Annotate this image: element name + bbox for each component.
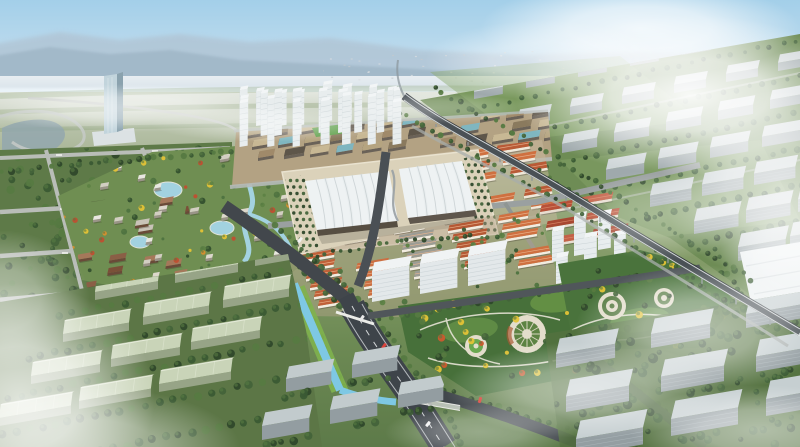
tree-highlight (670, 263, 673, 266)
tree-highlight (200, 152, 203, 155)
tree-highlight (37, 165, 40, 168)
plaza-tree (480, 202, 483, 205)
tree-highlight (507, 258, 510, 261)
aerial-rendering (0, 0, 800, 447)
tree-highlight (485, 306, 488, 309)
tree-highlight (176, 291, 179, 294)
tree-highlight (189, 356, 193, 360)
plaza-tree (305, 211, 308, 214)
tree-highlight (479, 341, 481, 343)
tree (516, 271, 519, 274)
tree (322, 252, 326, 256)
plaza-tree (292, 198, 295, 201)
tree-highlight (67, 178, 70, 181)
tree-highlight (660, 260, 662, 262)
tree-highlight (104, 158, 107, 161)
distant-building (415, 56, 417, 57)
tree (480, 236, 483, 239)
tree-highlight (571, 167, 574, 170)
tree-highlight (420, 319, 423, 322)
tree-highlight (408, 364, 410, 366)
plaza-tree (302, 218, 305, 221)
tree-highlight (442, 363, 445, 366)
plaza-tree (483, 209, 486, 212)
plaza-tree (302, 192, 305, 195)
tree-highlight (516, 219, 519, 222)
tree-highlight (209, 390, 213, 394)
small-plaza-center (474, 344, 479, 349)
tree-highlight (265, 273, 269, 277)
tree-highlight (290, 392, 293, 395)
distant-building (358, 79, 360, 80)
tree (541, 232, 544, 235)
plaza-tree (467, 163, 470, 166)
distant-building (331, 77, 333, 78)
cloud (425, 20, 665, 100)
tree-highlight (436, 354, 440, 358)
tree-highlight (407, 409, 411, 413)
tree-highlight (318, 265, 322, 269)
distant-building (367, 72, 369, 73)
tree-highlight (431, 236, 433, 238)
tree-highlight (199, 161, 201, 163)
tree-highlight (181, 153, 184, 156)
tree-highlight (212, 283, 216, 287)
tree-highlight (201, 247, 204, 250)
tree-highlight (354, 422, 357, 425)
tree-highlight (556, 155, 559, 158)
plaza-tree (477, 170, 480, 173)
tree (97, 161, 101, 165)
tree-highlight (206, 246, 209, 249)
tree-highlight (529, 142, 531, 144)
tree (89, 161, 93, 165)
tree (357, 248, 360, 251)
distant-building (421, 59, 423, 60)
tree (310, 253, 314, 257)
tree-highlight (435, 366, 439, 370)
tree-highlight (338, 269, 341, 272)
distant-building (422, 66, 424, 67)
cloud (330, 92, 530, 124)
plaza-tree (295, 179, 298, 182)
tree-highlight (510, 254, 512, 256)
tree-highlight (260, 379, 264, 383)
tree (207, 264, 210, 267)
tree-highlight (401, 356, 404, 359)
tree-highlight (274, 192, 277, 195)
tree-highlight (151, 155, 154, 158)
tree-highlight (73, 218, 76, 221)
plaza-tree (305, 224, 308, 227)
tree-highlight (190, 154, 192, 156)
tree-highlight (200, 286, 203, 289)
plaza-tree (470, 170, 473, 173)
tree (562, 163, 566, 167)
tree-highlight (392, 338, 395, 341)
tree-highlight (255, 416, 259, 420)
tree-highlight (137, 156, 140, 159)
tree-highlight (227, 279, 230, 282)
tree-highlight (328, 272, 330, 274)
tree-highlight (201, 251, 203, 253)
tree-highlight (143, 333, 146, 336)
distant-building (348, 66, 350, 67)
tree-highlight (536, 187, 539, 190)
tree-highlight (176, 169, 178, 171)
tree-highlight (279, 268, 282, 271)
tree-highlight (247, 309, 251, 313)
tree-highlight (402, 299, 405, 302)
tree (396, 239, 400, 243)
tree-highlight (234, 383, 238, 387)
tree-highlight (181, 395, 184, 398)
tree-highlight (493, 163, 495, 165)
tree-highlight (386, 332, 389, 335)
plaza-tree (302, 205, 305, 208)
plaza-tree (299, 198, 302, 201)
tree-highlight (60, 179, 62, 181)
tree (586, 176, 590, 180)
plaza-tree (308, 231, 311, 234)
tree (476, 285, 480, 289)
tree-highlight (50, 220, 53, 223)
tree (565, 311, 569, 315)
distant-building (359, 61, 361, 62)
tree-highlight (70, 163, 73, 166)
tree-highlight (240, 277, 243, 280)
plaza-tree (295, 192, 298, 195)
radial-plaza-center (522, 329, 532, 339)
tree-highlight (459, 144, 461, 146)
tree-highlight (312, 259, 315, 262)
tree-highlight (128, 159, 131, 162)
tree-highlight (351, 379, 355, 383)
tree-highlight (181, 324, 185, 328)
tree-highlight (444, 346, 447, 349)
tree-highlight (273, 376, 277, 380)
tree-highlight (378, 242, 380, 244)
tree (476, 153, 480, 157)
plaza-tree (474, 163, 477, 166)
tree-highlight (264, 442, 268, 446)
tree-highlight (495, 235, 497, 237)
tree-highlight (168, 155, 171, 158)
tree-highlight (267, 341, 270, 344)
tree-highlight (50, 164, 53, 167)
tree-highlight (500, 233, 503, 236)
tree-highlight (596, 269, 599, 272)
plaza-tree (305, 237, 308, 240)
tree-highlight (229, 150, 232, 153)
tree (413, 237, 417, 241)
tree (126, 209, 130, 213)
plaza-tree (299, 224, 302, 227)
distant-building (391, 78, 393, 79)
plaza-tree (315, 244, 318, 247)
tree-highlight (151, 178, 154, 181)
tree (108, 159, 112, 163)
tree-highlight (240, 347, 243, 350)
tree-highlight (221, 317, 224, 320)
tree-highlight (466, 147, 468, 149)
tree-highlight (162, 364, 166, 368)
tree (161, 237, 164, 240)
tree-highlight (139, 205, 142, 208)
tree-highlight (16, 168, 19, 171)
tree-highlight (501, 124, 503, 126)
plaza-tree (292, 211, 295, 214)
tree (331, 249, 335, 253)
plaza-tree (295, 218, 298, 221)
tree-highlight (7, 186, 11, 190)
plaza-tree (474, 189, 477, 192)
tree-highlight (438, 133, 441, 136)
tree-highlight (437, 244, 440, 247)
tree-highlight (89, 178, 91, 180)
tree (232, 237, 236, 241)
tree (316, 255, 320, 259)
plaza-tree (480, 189, 483, 192)
tree-highlight (187, 287, 191, 291)
plaza-tree (292, 185, 295, 188)
tree-highlight (103, 232, 105, 234)
distant-building (330, 58, 332, 59)
pond (210, 221, 234, 235)
tree-highlight (439, 237, 441, 239)
tree-highlight (449, 139, 451, 141)
tree-highlight (442, 353, 445, 356)
plaza-tree (299, 185, 302, 188)
tree-highlight (293, 337, 297, 341)
tree (188, 249, 191, 252)
tree-highlight (142, 161, 145, 164)
tree-highlight (253, 344, 257, 348)
tree-highlight (305, 432, 309, 436)
tree-highlight (463, 329, 466, 332)
distant-building (351, 58, 353, 59)
tree (200, 229, 203, 232)
tree-highlight (461, 264, 463, 266)
tree-highlight (360, 422, 363, 425)
tree-highlight (572, 158, 574, 160)
tree-highlight (535, 283, 537, 285)
tree-highlight (544, 192, 547, 195)
tree-highlight (245, 381, 249, 385)
tree-highlight (167, 326, 170, 329)
tree-highlight (446, 236, 448, 238)
tree-highlight (468, 233, 470, 235)
distant-building (344, 65, 346, 66)
plaza-tree (480, 176, 483, 179)
tree (348, 249, 352, 253)
tree-highlight (270, 208, 273, 211)
plaza-tree (477, 196, 480, 199)
tree-highlight (84, 229, 87, 232)
plaza-tree (302, 244, 305, 247)
tree-highlight (260, 309, 264, 313)
tree (538, 147, 542, 151)
tree (87, 184, 91, 188)
tree-highlight (293, 240, 296, 243)
tree-highlight (401, 409, 405, 413)
tree-highlight (594, 178, 597, 181)
tree-highlight (469, 338, 472, 341)
tree-highlight (537, 214, 539, 216)
tree-highlight (27, 180, 31, 184)
tree-highlight (123, 301, 127, 305)
plaza-tree (289, 192, 292, 195)
tree-highlight (510, 131, 513, 134)
tree-highlight (36, 196, 39, 199)
plaza-tree (299, 211, 302, 214)
tree-highlight (588, 294, 591, 297)
tree (186, 255, 189, 258)
tree-highlight (195, 393, 199, 397)
tree-highlight (200, 198, 203, 201)
tree-highlight (522, 134, 524, 136)
tree-highlight (301, 390, 305, 394)
tree-highlight (422, 238, 424, 240)
plaza-tree (474, 176, 477, 179)
tree-highlight (455, 237, 457, 239)
tree-highlight (133, 215, 136, 218)
tree-highlight (405, 238, 407, 240)
tree-highlight (273, 305, 277, 309)
tree (263, 194, 266, 197)
tree-highlight (300, 247, 302, 249)
tree (462, 228, 466, 232)
tree-highlight (175, 361, 179, 365)
tree-highlight (174, 258, 177, 261)
tree-highlight (414, 371, 417, 374)
tree (512, 217, 516, 221)
tree-highlight (271, 441, 274, 444)
tree-highlight (44, 184, 48, 188)
tree-highlight (29, 222, 32, 225)
tree-highlight (202, 355, 205, 358)
tree-highlight (285, 304, 289, 308)
tree-highlight (463, 234, 465, 236)
tree-highlight (566, 334, 569, 337)
tree-highlight (458, 319, 461, 322)
plaza-tree (470, 183, 473, 186)
tree-highlight (513, 316, 516, 319)
plaza-tree (308, 218, 311, 221)
tree-highlight (91, 251, 93, 253)
tree (486, 159, 490, 163)
plaza-tree (487, 202, 490, 205)
tree-highlight (544, 150, 547, 153)
tree (161, 156, 165, 160)
distant-building (379, 63, 381, 64)
tree-highlight (119, 160, 122, 163)
tree-highlight (128, 198, 130, 200)
tree-highlight (154, 329, 158, 333)
tree-highlight (580, 174, 582, 176)
plaza-tree (467, 176, 470, 179)
tree-highlight (9, 177, 12, 180)
plaza-tree (483, 196, 486, 199)
scene-canvas (0, 0, 800, 447)
tree-highlight (228, 350, 232, 354)
tree-highlight (122, 229, 125, 232)
tree-highlight (501, 168, 504, 171)
tree (400, 239, 404, 243)
tree-highlight (208, 319, 211, 322)
tree (222, 164, 226, 168)
tree-highlight (386, 376, 389, 379)
tree (514, 248, 518, 252)
tree-highlight (486, 236, 488, 238)
tree-highlight (348, 288, 351, 291)
tree-highlight (261, 203, 263, 205)
tree-highlight (288, 235, 290, 237)
tree (406, 243, 410, 247)
tree-highlight (323, 291, 326, 294)
tree-highlight (150, 365, 153, 368)
tree-highlight (558, 162, 560, 164)
tree-highlight (290, 437, 294, 441)
tree-highlight (306, 253, 308, 255)
plaza-tree (302, 179, 305, 182)
plaza-tree (308, 244, 311, 247)
tree-highlight (434, 86, 436, 88)
plaza-tree (312, 237, 315, 240)
tree-highlight (33, 223, 36, 226)
tree-highlight (233, 315, 237, 319)
tree-highlight (8, 167, 10, 169)
tree (158, 153, 162, 157)
tree-highlight (482, 334, 486, 338)
tree (193, 194, 197, 198)
distant-building (392, 55, 394, 56)
tree-highlight (146, 155, 149, 158)
tree-highlight (543, 339, 545, 341)
tree (184, 185, 187, 188)
tree-highlight (431, 129, 433, 131)
tree-highlight (148, 296, 151, 299)
plaza-tree (305, 198, 308, 201)
tree-highlight (70, 168, 74, 172)
tree-highlight (362, 379, 366, 383)
tree (592, 288, 596, 292)
tree-highlight (30, 169, 32, 171)
tree-highlight (55, 220, 59, 224)
tree-highlight (421, 375, 423, 377)
tree-highlight (279, 229, 282, 232)
tree (210, 182, 214, 186)
tree-highlight (161, 293, 164, 296)
tree-highlight (52, 238, 56, 242)
plaza-tree (477, 209, 480, 212)
tree-highlight (218, 149, 221, 152)
plaza-tree (295, 231, 298, 234)
tree (385, 241, 389, 245)
tree-highlight (58, 162, 61, 165)
tree-highlight (222, 235, 225, 238)
tree-highlight (220, 388, 224, 392)
plaza-tree (490, 209, 493, 212)
plaza-tree (289, 179, 292, 182)
tree-highlight (417, 334, 420, 337)
tree-highlight (471, 243, 474, 246)
tree-highlight (278, 341, 281, 344)
tree-highlight (100, 238, 103, 241)
tree-highlight (214, 353, 218, 357)
tree-highlight (135, 297, 138, 300)
tree (218, 156, 221, 159)
